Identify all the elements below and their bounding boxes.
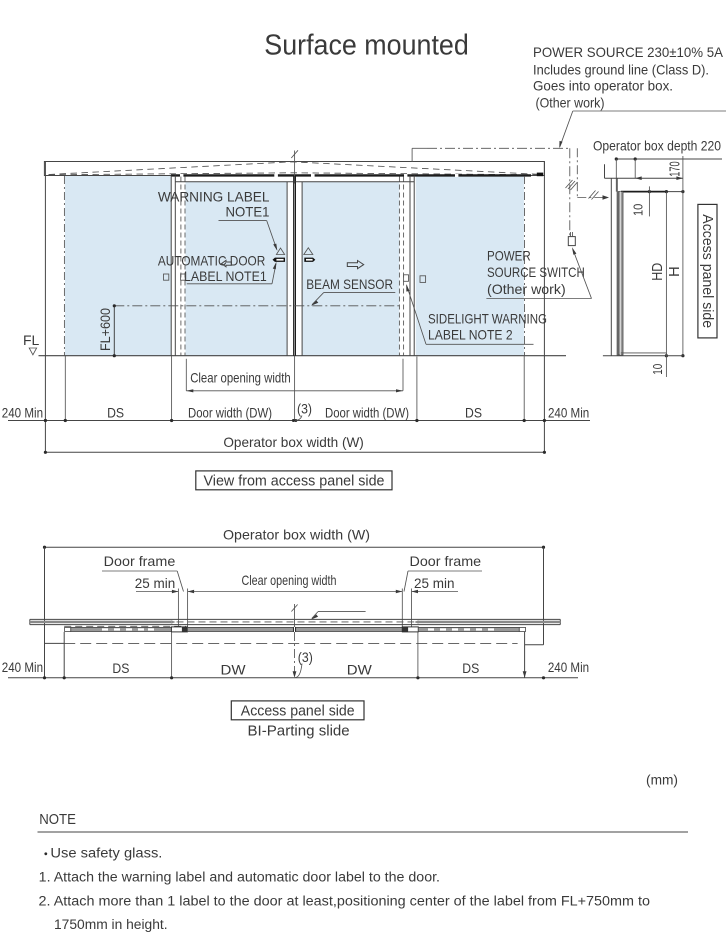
svg-text:Use safety glass.: Use safety glass. — [50, 846, 162, 862]
svg-text:10: 10 — [650, 364, 665, 375]
svg-text:DW: DW — [221, 662, 247, 678]
svg-text:(3): (3) — [297, 401, 312, 417]
svg-text:LABEL NOTE1: LABEL NOTE1 — [184, 268, 267, 284]
svg-text:Door frame: Door frame — [410, 553, 482, 569]
svg-text:AUTOMATIC DOOR: AUTOMATIC DOOR — [158, 253, 265, 269]
svg-text:Door width (DW): Door width (DW) — [188, 404, 272, 420]
svg-text:240 Min: 240 Min — [548, 659, 589, 675]
svg-text:Includes ground line (Class D): Includes ground line (Class D). — [533, 62, 709, 78]
svg-text:Access panel side: Access panel side — [241, 703, 355, 719]
svg-text:240 Min: 240 Min — [548, 404, 589, 420]
svg-text:DS: DS — [112, 660, 129, 676]
svg-text:Operator box depth 220: Operator box depth 220 — [593, 138, 721, 154]
svg-text:HD: HD — [650, 263, 666, 281]
svg-text:1. Attach the warning label an: 1. Attach the warning label and automati… — [39, 870, 440, 886]
svg-text:(Other work): (Other work) — [536, 95, 605, 111]
svg-text:NOTE: NOTE — [39, 812, 76, 828]
svg-text:240 Min: 240 Min — [2, 404, 43, 420]
svg-text:NOTE1: NOTE1 — [226, 204, 270, 220]
svg-text:170: 170 — [667, 161, 684, 176]
svg-text:25 min: 25 min — [135, 575, 176, 591]
svg-text:FL+600: FL+600 — [97, 308, 113, 351]
svg-text:DS: DS — [465, 404, 482, 420]
svg-text:25 min: 25 min — [414, 575, 455, 591]
svg-text:1750mm in height.: 1750mm in height. — [54, 917, 168, 933]
svg-text:DS: DS — [462, 660, 479, 676]
svg-text:Goes into operator box.: Goes into operator box. — [533, 78, 673, 94]
svg-text:240 Min: 240 Min — [2, 659, 43, 675]
svg-text:View from access panel side: View from access panel side — [204, 473, 385, 489]
svg-text:Operator box width (W): Operator box width (W) — [223, 434, 364, 450]
svg-text:(mm): (mm) — [646, 772, 678, 787]
svg-text:Clear opening width: Clear opening width — [190, 370, 291, 386]
svg-text:BEAM SENSOR: BEAM SENSOR — [306, 276, 393, 292]
svg-text:BI-Parting slide: BI-Parting slide — [248, 724, 350, 740]
svg-text:10: 10 — [631, 204, 646, 216]
svg-text:(3): (3) — [298, 649, 313, 665]
svg-text:SOURCE SWITCH: SOURCE SWITCH — [487, 264, 585, 280]
svg-text:Operator box width (W): Operator box width (W) — [223, 527, 370, 543]
svg-text:DS: DS — [107, 404, 124, 420]
svg-text:POWER: POWER — [487, 247, 531, 263]
svg-text:SIDELIGHT WARNING: SIDELIGHT WARNING — [428, 310, 547, 326]
svg-text:WARNING LABEL: WARNING LABEL — [158, 189, 270, 205]
svg-text:Clear opening width: Clear opening width — [242, 572, 337, 588]
svg-text:H: H — [667, 266, 683, 277]
svg-text:DW: DW — [347, 662, 373, 678]
svg-text:(Other work): (Other work) — [487, 281, 566, 297]
svg-text:2. Attach more than 1 label to: 2. Attach more than 1 label to the door … — [39, 894, 651, 910]
svg-text:Surface mounted: Surface mounted — [264, 30, 469, 62]
svg-text:Door width (DW): Door width (DW) — [325, 404, 409, 420]
svg-text:Door frame: Door frame — [104, 553, 176, 569]
svg-text:Access panel side: Access panel side — [699, 214, 715, 328]
svg-text:LABEL NOTE 2: LABEL NOTE 2 — [428, 326, 513, 342]
svg-text:FL: FL — [23, 332, 40, 348]
svg-text:POWER SOURCE 230±10% 5A: POWER SOURCE 230±10% 5A — [533, 44, 724, 60]
